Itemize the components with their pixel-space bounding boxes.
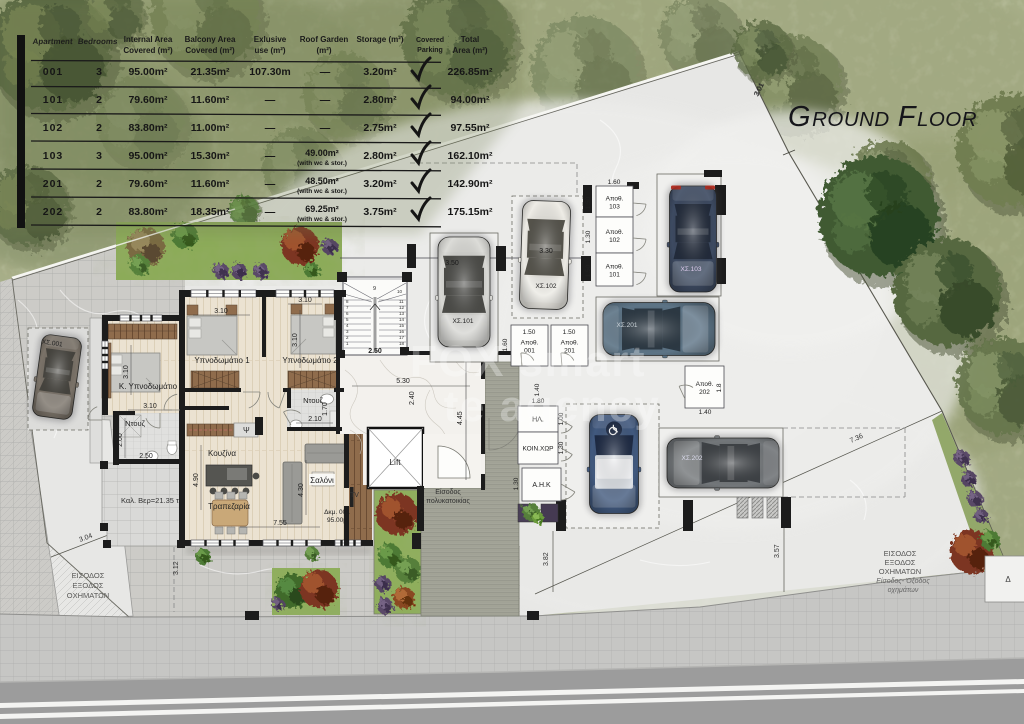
svg-text:Parking: Parking (417, 47, 443, 54)
svg-text:201: 201 (43, 178, 64, 190)
svg-text:—: — (320, 94, 331, 106)
svg-text:14: 14 (399, 317, 405, 322)
svg-text:Ντουζ: Ντουζ (125, 419, 146, 428)
svg-text:79.60m²: 79.60m² (128, 178, 168, 190)
svg-text:1.8: 1.8 (716, 383, 723, 392)
svg-text:226.85m²: 226.85m² (448, 66, 493, 78)
svg-text:Είσοδος- Όξοδος: Είσοδος- Όξοδος (876, 577, 930, 585)
svg-text:3.10: 3.10 (298, 297, 312, 304)
svg-text:11.60m²: 11.60m² (191, 178, 230, 190)
svg-text:3: 3 (96, 150, 102, 162)
svg-text:1.30: 1.30 (513, 477, 520, 490)
svg-text:Storage (m²): Storage (m²) (356, 35, 403, 44)
svg-text:2: 2 (96, 122, 102, 134)
svg-text:3.75m²: 3.75m² (363, 206, 397, 218)
svg-text:3.57: 3.57 (774, 544, 781, 558)
svg-text:2: 2 (96, 206, 102, 218)
svg-text:ΟΧΗΜΑΤΩΝ: ΟΧΗΜΑΤΩΝ (879, 567, 921, 576)
svg-text:3.30: 3.30 (539, 248, 553, 255)
svg-text:97.55m²: 97.55m² (450, 122, 490, 134)
svg-text:202: 202 (43, 206, 64, 218)
svg-text:11: 11 (399, 299, 404, 304)
svg-text:15.30m²: 15.30m² (190, 150, 230, 162)
svg-text:18: 18 (399, 341, 405, 346)
svg-text:11.60m²: 11.60m² (191, 94, 230, 106)
svg-text:Αποθ.: Αποθ. (696, 381, 714, 388)
svg-text:—: — (265, 94, 276, 106)
svg-text:4.90: 4.90 (193, 473, 200, 487)
svg-text:3.82: 3.82 (543, 552, 550, 566)
svg-text:(m²): (m²) (316, 46, 331, 55)
svg-text:142.90m²: 142.90m² (448, 178, 493, 190)
svg-text:95.00m²: 95.00m² (128, 150, 168, 162)
svg-text:Apartment: Apartment (32, 37, 73, 46)
svg-text:21.35m²: 21.35m² (190, 66, 230, 78)
svg-text:3.12: 3.12 (173, 561, 180, 575)
svg-text:2: 2 (96, 178, 102, 190)
svg-text:102: 102 (43, 122, 64, 134)
svg-text:2.10: 2.10 (308, 416, 322, 423)
svg-text:ΧΣ.101: ΧΣ.101 (452, 318, 473, 325)
svg-text:Internal Area: Internal Area (124, 35, 173, 44)
svg-text:79.60m²: 79.60m² (128, 94, 168, 106)
svg-text:Ντουζ: Ντουζ (303, 396, 324, 405)
svg-text:Ψ: Ψ (243, 426, 250, 435)
svg-text:48.50m²: 48.50m² (305, 176, 339, 186)
svg-text:001: 001 (43, 66, 64, 78)
svg-text:ΚΟΙΝ.ΧΩΡ: ΚΟΙΝ.ΧΩΡ (522, 446, 553, 453)
svg-text:9: 9 (373, 286, 376, 292)
svg-text:3.10: 3.10 (123, 365, 130, 379)
svg-text:3.20m²: 3.20m² (363, 66, 397, 78)
svg-text:Αποθ.: Αποθ. (606, 264, 624, 271)
svg-text:1.50: 1.50 (585, 196, 592, 209)
svg-text:—: — (265, 206, 276, 218)
svg-text:Υπνοδωμάτιο 2: Υπνοδωμάτιο 2 (282, 356, 338, 365)
svg-text:10: 10 (397, 289, 403, 294)
svg-text:Αποθ.: Αποθ. (606, 229, 624, 236)
svg-text:69.25m²: 69.25m² (305, 204, 339, 214)
svg-text:Balcony Area: Balcony Area (185, 35, 236, 44)
svg-text:2.80m²: 2.80m² (363, 150, 397, 162)
svg-text:πολυκατοικίας: πολυκατοικίας (426, 497, 470, 505)
svg-text:(with wc & stor.): (with wc & stor.) (297, 188, 347, 195)
svg-text:12: 12 (399, 305, 405, 310)
svg-text:13: 13 (399, 311, 405, 316)
svg-text:TV: TV (350, 492, 359, 499)
svg-text:107.30m: 107.30m (249, 66, 290, 78)
svg-text:49.00m²: 49.00m² (305, 148, 339, 158)
svg-text:2.80m²: 2.80m² (363, 94, 397, 106)
svg-text:Covered: Covered (416, 37, 444, 44)
svg-text:te agency: te agency (444, 382, 660, 431)
svg-text:175.15m²: 175.15m² (448, 206, 493, 218)
svg-text:202: 202 (699, 389, 710, 396)
svg-text:Είσοδος: Είσοδος (435, 488, 461, 496)
svg-text:Area (m²): Area (m²) (452, 46, 487, 55)
svg-text:94.00m²: 94.00m² (450, 94, 490, 106)
svg-text:2.40: 2.40 (409, 391, 416, 405)
svg-text:1.50: 1.50 (523, 329, 536, 336)
svg-text:18.35m²: 18.35m² (190, 206, 230, 218)
svg-text:2: 2 (96, 94, 102, 106)
svg-text:3.20m²: 3.20m² (363, 178, 397, 190)
svg-text:1.30: 1.30 (585, 230, 592, 243)
svg-text:1.70: 1.70 (322, 402, 329, 416)
svg-text:1.50: 1.50 (585, 264, 592, 277)
svg-text:83.80m²: 83.80m² (128, 122, 168, 134)
svg-text:—: — (320, 122, 331, 134)
svg-text:(with wc & stor.): (with wc & stor.) (297, 216, 347, 223)
svg-text:7.55: 7.55 (273, 520, 287, 527)
svg-text:Καλ. Βερ=21.35 τ.μ: Καλ. Βερ=21.35 τ.μ (121, 496, 185, 505)
svg-text:ΧΣ.202: ΧΣ.202 (681, 455, 702, 462)
svg-text:Α.Η.Κ: Α.Η.Κ (532, 482, 551, 489)
svg-text:ΕΙΣΟΔΟΣ: ΕΙΣΟΔΟΣ (884, 549, 917, 558)
svg-text:Lift: Lift (389, 457, 401, 467)
svg-text:Κουζίνα: Κουζίνα (208, 449, 236, 458)
svg-text:3.10: 3.10 (214, 308, 228, 315)
svg-text:11.00m²: 11.00m² (191, 122, 230, 134)
svg-text:3: 3 (96, 66, 102, 78)
svg-text:Υπνοδωμάτιο 1: Υπνοδωμάτιο 1 (194, 356, 250, 365)
svg-text:Αποθ.: Αποθ. (606, 196, 624, 203)
svg-text:Total: Total (461, 35, 480, 44)
svg-text:—: — (265, 150, 276, 162)
svg-text:3.50: 3.50 (445, 260, 459, 267)
svg-text:Roof Garden: Roof Garden (300, 35, 349, 44)
svg-text:(with wc & stor.): (with wc & stor.) (297, 160, 347, 167)
svg-text:162.10m²: 162.10m² (448, 150, 493, 162)
svg-text:102: 102 (609, 237, 620, 244)
svg-text:103: 103 (43, 150, 64, 162)
svg-text:Bedrooms: Bedrooms (77, 37, 118, 46)
svg-text:2.50: 2.50 (368, 348, 382, 355)
svg-text:Σαλόνι: Σαλόνι (310, 476, 334, 485)
svg-text:3.10: 3.10 (143, 403, 157, 410)
svg-text:101: 101 (43, 94, 64, 106)
svg-text:1.30: 1.30 (558, 441, 565, 454)
svg-text:Exlusive: Exlusive (254, 35, 287, 44)
svg-text:—: — (265, 178, 276, 190)
svg-text:1.40: 1.40 (699, 409, 712, 416)
svg-text:Κ. Υπνοδωμάτιο: Κ. Υπνοδωμάτιο (119, 382, 178, 391)
svg-text:ΧΣ.201: ΧΣ.201 (616, 322, 637, 329)
svg-text:Δ: Δ (1005, 575, 1011, 584)
svg-text:FOX smart: FOX smart (410, 337, 646, 386)
svg-text:101: 101 (609, 272, 620, 279)
svg-text:Covered (m²): Covered (m²) (123, 46, 173, 55)
svg-text:ΧΣ.103: ΧΣ.103 (680, 266, 701, 273)
svg-text:15: 15 (399, 323, 405, 328)
svg-text:Covered (m²): Covered (m²) (185, 46, 235, 55)
svg-text:1.60: 1.60 (608, 179, 621, 186)
svg-text:103: 103 (609, 204, 620, 211)
svg-text:ΕΞΟΔΟΣ: ΕΞΟΔΟΣ (885, 558, 916, 567)
svg-text:—: — (320, 66, 331, 78)
svg-text:Τραπεζαρία: Τραπεζαρία (208, 502, 250, 511)
svg-text:1.50: 1.50 (563, 329, 576, 336)
svg-text:5.30: 5.30 (396, 378, 410, 385)
svg-text:2.50: 2.50 (139, 453, 153, 460)
svg-text:use (m²): use (m²) (254, 46, 285, 55)
svg-text:83.80m²: 83.80m² (128, 206, 168, 218)
svg-text:17: 17 (399, 335, 405, 340)
svg-text:95.00m²: 95.00m² (128, 66, 168, 78)
svg-text:2.75m²: 2.75m² (363, 122, 397, 134)
svg-text:ΧΣ.102: ΧΣ.102 (535, 283, 556, 290)
svg-text:4.30: 4.30 (298, 483, 305, 497)
svg-text:—: — (265, 122, 276, 134)
svg-text:16: 16 (399, 329, 405, 334)
svg-text:οχημάτων: οχημάτων (888, 586, 919, 594)
svg-text:3.10: 3.10 (292, 333, 299, 347)
